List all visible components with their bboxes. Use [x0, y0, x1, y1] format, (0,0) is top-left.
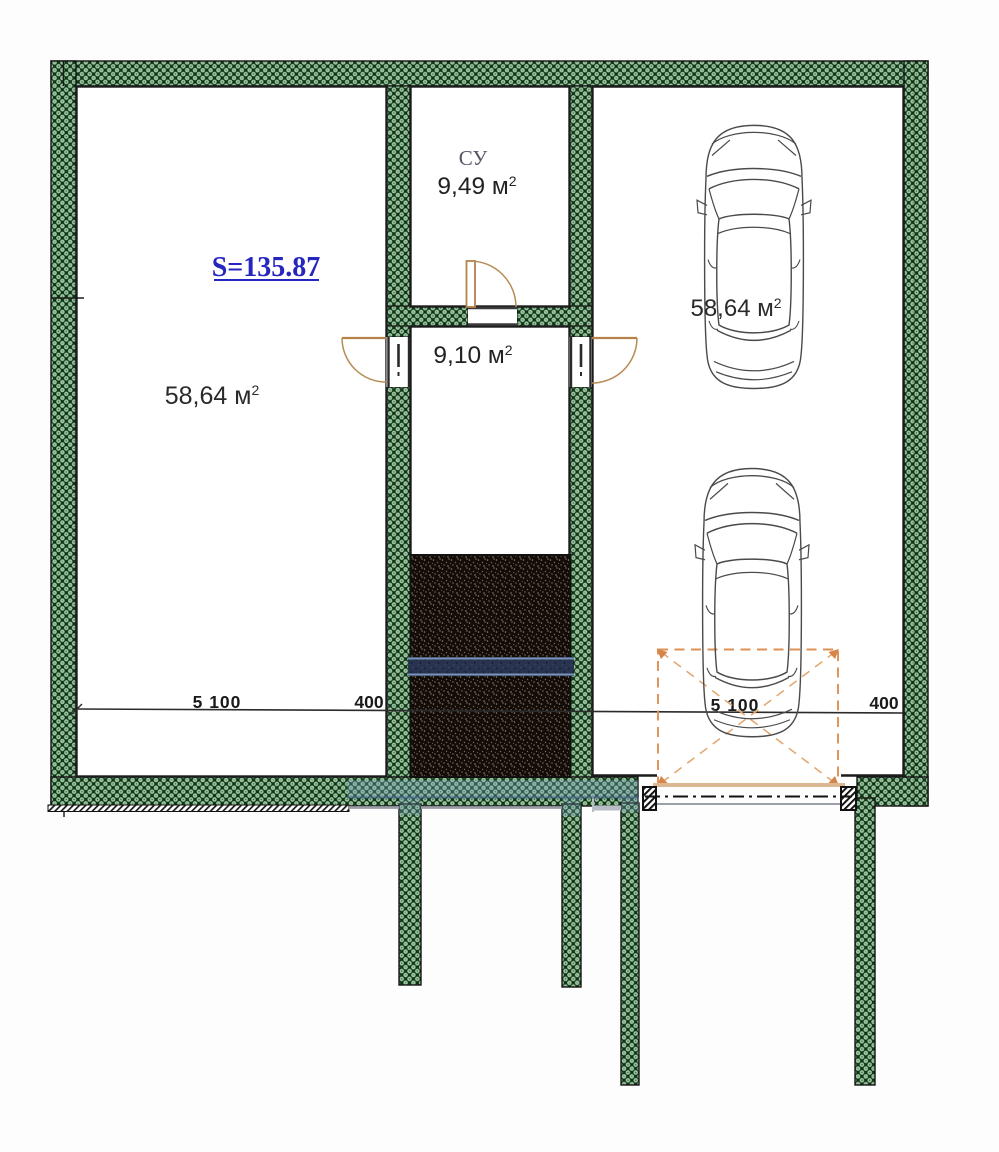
svg-text:400: 400 [354, 692, 383, 712]
svg-text:58,64 м2: 58,64 м2 [165, 382, 260, 410]
svg-text:9,49 м2: 9,49 м2 [437, 173, 516, 200]
svg-text:СУ: СУ [459, 146, 488, 170]
svg-text:9,10 м2: 9,10 м2 [433, 342, 512, 369]
svg-text:5 100: 5 100 [193, 692, 242, 712]
svg-text:400: 400 [869, 693, 898, 713]
svg-text:S=135.87: S=135.87 [212, 252, 321, 283]
svg-text:58,64 м2: 58,64 м2 [690, 295, 781, 322]
